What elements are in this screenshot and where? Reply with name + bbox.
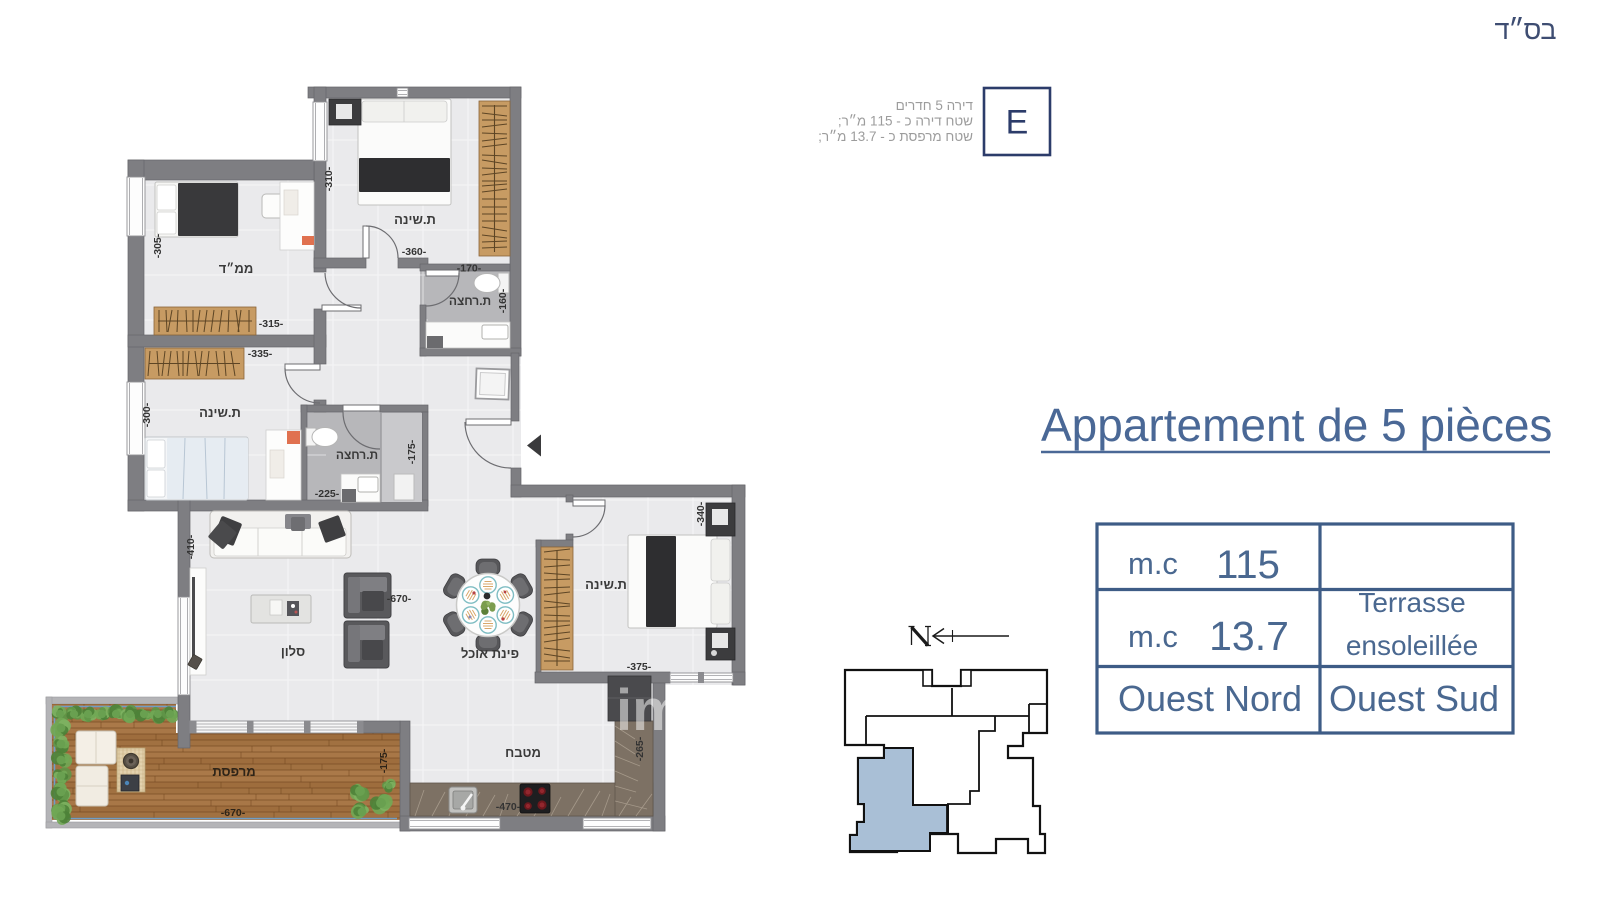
svg-text:מרפסת: מרפסת xyxy=(212,764,255,779)
svg-text:Appartement de 5 pièces: Appartement de 5 pièces xyxy=(1041,399,1552,451)
svg-text:13.7: 13.7 xyxy=(1209,613,1289,659)
svg-text:115: 115 xyxy=(1216,543,1280,587)
svg-text:Terrasse: Terrasse xyxy=(1358,587,1465,618)
svg-text:ת.רחצה: ת.רחצה xyxy=(336,448,378,462)
svg-text:-470-: -470- xyxy=(496,801,521,813)
svg-text:סלון: סלון xyxy=(281,644,305,659)
svg-text:-225-: -225- xyxy=(315,488,340,500)
svg-text:E: E xyxy=(1006,104,1029,142)
svg-text:-670-: -670- xyxy=(387,593,412,605)
svg-text:ת.שינה: ת.שינה xyxy=(585,577,627,592)
svg-text:-315-: -315- xyxy=(259,318,284,330)
svg-text:-360-: -360- xyxy=(402,246,427,258)
svg-text:-375-: -375- xyxy=(627,661,652,673)
svg-text:-300-: -300- xyxy=(141,402,153,427)
svg-text:פינת אוכל: פינת אוכל xyxy=(461,646,519,661)
svg-text:ת.רחצה: ת.רחצה xyxy=(449,294,491,308)
svg-text:שטח מרפסת כ - 13.7 מ״ר;: שטח מרפסת כ - 13.7 מ״ר; xyxy=(818,129,973,144)
svg-text:m.c: m.c xyxy=(1128,619,1178,654)
svg-text:Ouest Nord: Ouest Nord xyxy=(1118,678,1302,719)
svg-text:בס״ד: בס״ד xyxy=(1494,15,1556,45)
svg-text:מטבח: מטבח xyxy=(505,745,541,760)
svg-text:-160-: -160- xyxy=(497,288,509,313)
svg-text:-175-: -175- xyxy=(378,748,390,773)
svg-text:-265-: -265- xyxy=(634,736,646,761)
svg-text:דירה 5 חדרים: דירה 5 חדרים xyxy=(896,98,974,113)
svg-text:-340-: -340- xyxy=(695,501,707,526)
svg-text:ת.שינה: ת.שינה xyxy=(199,405,241,420)
svg-text:im: im xyxy=(616,678,684,743)
svg-text:m.c: m.c xyxy=(1128,546,1178,581)
svg-text:-175-: -175- xyxy=(406,439,418,464)
svg-text:-670-: -670- xyxy=(221,807,246,819)
svg-text:Ouest Sud: Ouest Sud xyxy=(1329,678,1499,719)
svg-text:שטח דירה כ - 115 מ״ר;: שטח דירה כ - 115 מ״ר; xyxy=(838,114,973,129)
svg-text:ensoleillée: ensoleillée xyxy=(1346,630,1478,661)
svg-text:ת.שינה: ת.שינה xyxy=(394,212,436,227)
svg-text:-335-: -335- xyxy=(248,348,273,360)
svg-text:-310-: -310- xyxy=(323,166,335,191)
svg-text:-305-: -305- xyxy=(152,233,164,258)
svg-text:-170-: -170- xyxy=(457,263,482,275)
svg-text:ממ״ד: ממ״ד xyxy=(219,261,254,276)
svg-text:-410-: -410- xyxy=(185,534,197,559)
